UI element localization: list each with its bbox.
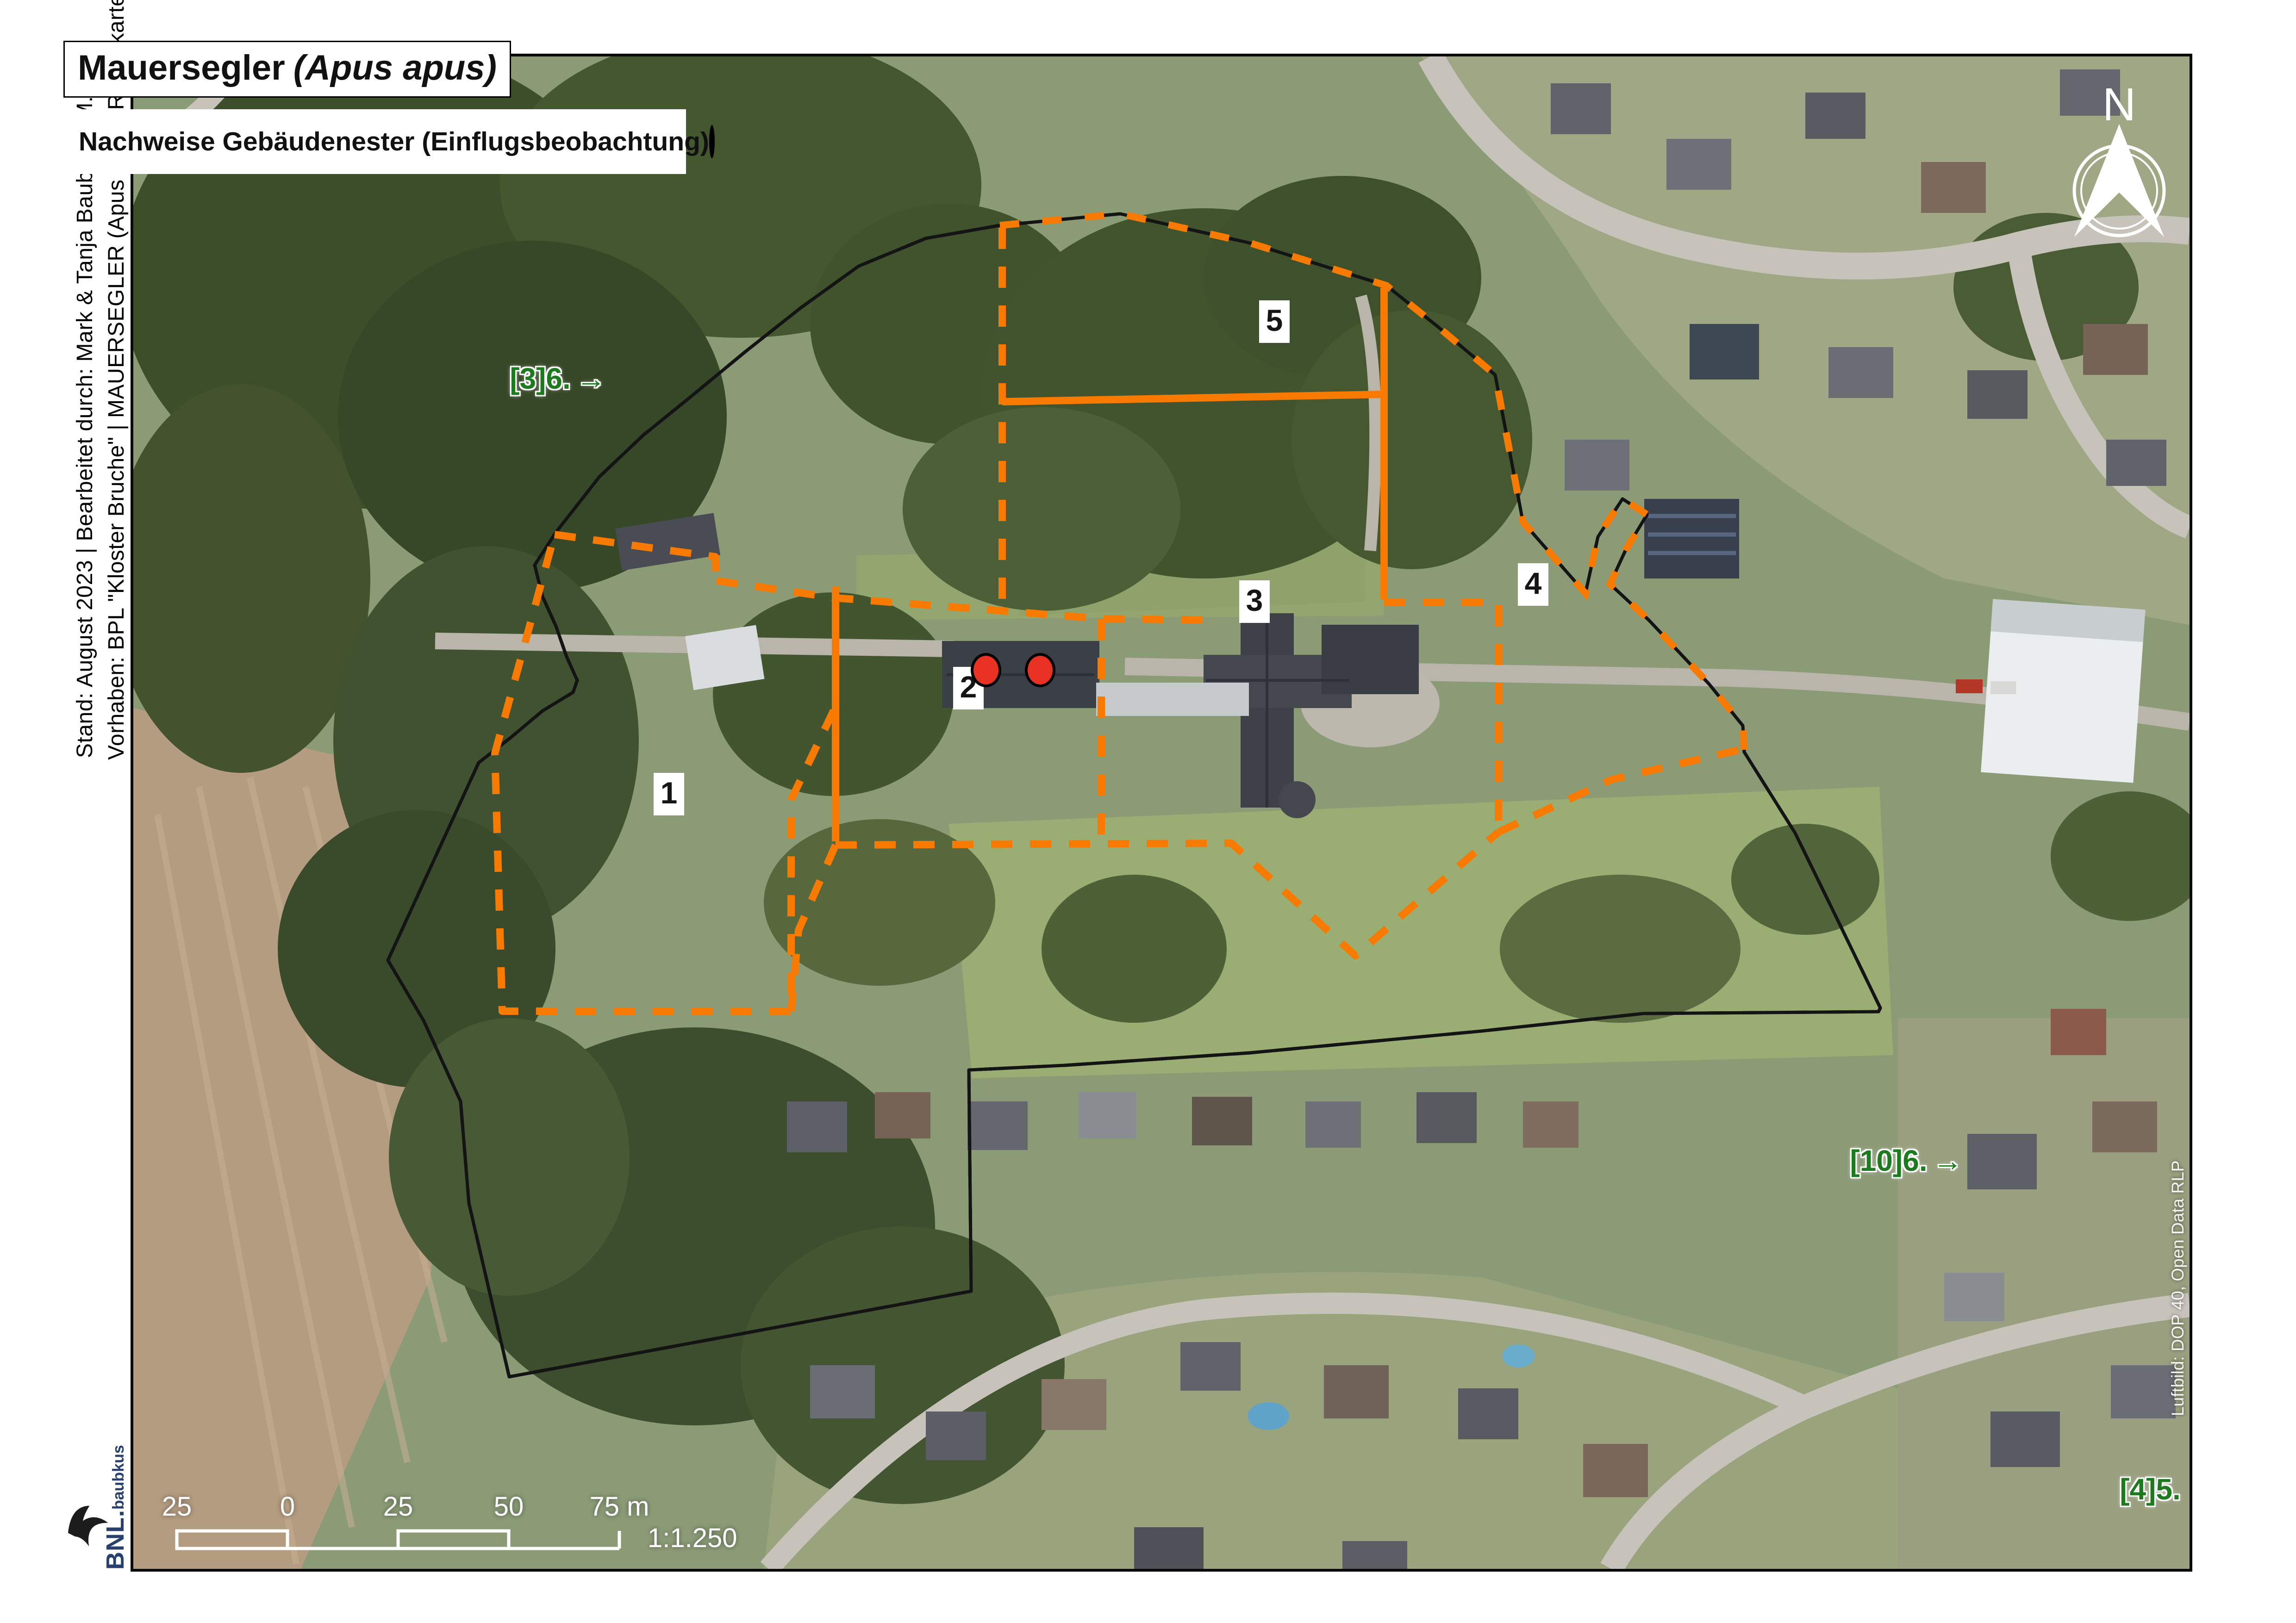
north-label: N: [2103, 79, 2136, 131]
scalebar-label: 25: [383, 1491, 413, 1522]
area-label: 3: [1239, 580, 1270, 623]
legend-nest-marker-icon: [709, 125, 715, 158]
scalebar: 250255075 m 1:1.250: [158, 1482, 898, 1570]
scalebar-label: 25: [162, 1491, 192, 1522]
direction-arrow-icon: →: [576, 362, 606, 395]
photo-credit: Luftbild: DOP 40, Open Data RLP: [2168, 1160, 2188, 1416]
map-frame: 12345[3]6.→[10]6.→[4]5. 250255075 m 1:1.…: [131, 54, 2192, 1572]
scalebar-bar: [158, 1527, 667, 1551]
map-annotation-layer: 12345[3]6.→[10]6.→[4]5.: [133, 56, 2190, 1569]
scalebar-ratio: 1:1.250: [648, 1523, 737, 1554]
nest-marker: [1025, 653, 1055, 687]
area-label: 4: [1518, 563, 1548, 606]
territory-label: [10]6.→: [1850, 1144, 1962, 1178]
territory-label: [3]6.→: [510, 361, 606, 396]
scalebar-label: 50: [494, 1491, 524, 1522]
legend: Nachweise Gebäudenester (Einflugsbeobach…: [61, 109, 686, 174]
north-arrow: N: [2054, 69, 2184, 273]
area-label: 1: [654, 773, 684, 815]
scalebar-label: 0: [280, 1491, 295, 1522]
title-species: Mauersegler: [78, 48, 285, 87]
legend-label: Nachweise Gebäudenester (Einflugsbeobach…: [79, 126, 709, 157]
logo-sub: baubkus: [110, 1445, 127, 1510]
scalebar-label: 75 m: [590, 1491, 649, 1522]
map-title: Mauersegler(Apus apus): [63, 41, 511, 98]
direction-arrow-icon: →: [1933, 1144, 1963, 1177]
territory-label: [4]5.: [2120, 1472, 2181, 1506]
nest-marker: [971, 653, 1001, 687]
logo-wordmark: BNL.baubkus: [101, 1445, 130, 1570]
logo-brand: BNL.: [101, 1510, 129, 1570]
map-layout-page: Stand: August 2023 | Bearbeitet durch: M…: [0, 0, 2296, 1623]
area-label: 5: [1259, 300, 1290, 343]
title-scientific-name: (Apus apus): [293, 48, 497, 87]
